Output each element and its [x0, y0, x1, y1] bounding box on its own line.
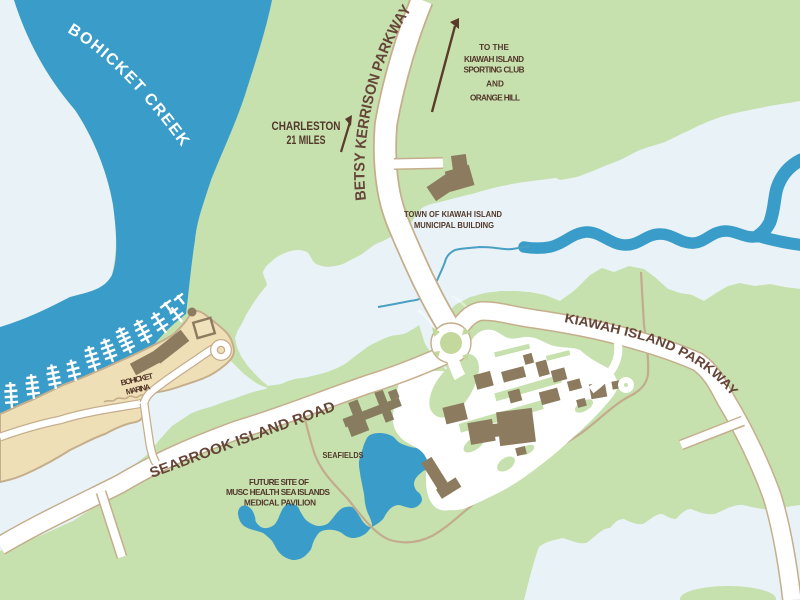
svg-text:SPORTING CLUB: SPORTING CLUB [464, 66, 525, 75]
svg-text:AND: AND [486, 80, 504, 89]
svg-text:ORANGE HILL: ORANGE HILL [470, 94, 520, 103]
svg-text:MUSC HEALTH SEA ISLANDS: MUSC HEALTH SEA ISLANDS [226, 488, 331, 497]
svg-text:TOWN OF KIAWAH ISLAND: TOWN OF KIAWAH ISLAND [404, 209, 502, 219]
svg-text:MEDICAL PAVILION: MEDICAL PAVILION [244, 499, 316, 508]
svg-text:CHARLESTON: CHARLESTON [272, 119, 341, 133]
svg-text:TO THE: TO THE [479, 43, 509, 52]
svg-text:21 MILES: 21 MILES [287, 133, 326, 147]
svg-text:FUTURE SITE OF: FUTURE SITE OF [249, 478, 309, 487]
svg-text:MUNICIPAL BUILDING: MUNICIPAL BUILDING [414, 220, 494, 230]
svg-text:SEAFIELDS: SEAFIELDS [323, 450, 364, 460]
svg-text:KIAWAH ISLAND: KIAWAH ISLAND [464, 55, 524, 64]
